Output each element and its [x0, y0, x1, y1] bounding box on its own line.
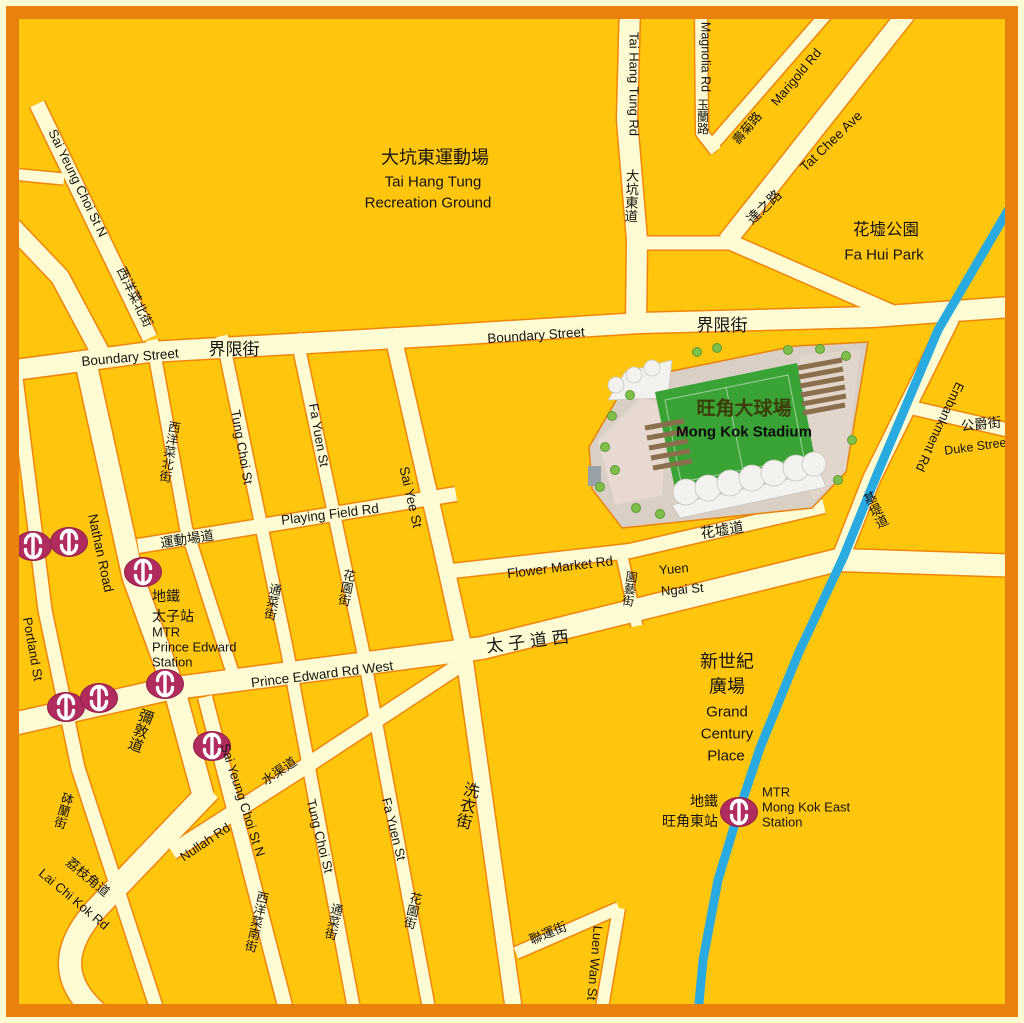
label-tai-hang-tung-recreation-ground-en-2: Recreation Ground — [365, 194, 492, 211]
mongkok-map: Sai Yeung Choi St N西洋菜北街大坑東運動場Tai Hang T… — [0, 0, 1024, 1023]
label-prince-edward-station-zh-2: 太子站 — [152, 608, 194, 624]
label-mong-kok-east-station-zh-2: 旺角東站 — [662, 813, 718, 829]
label-grand-century-place-en-3: Place — [707, 747, 745, 764]
mtr-station-icon — [721, 798, 758, 827]
stadium-nw-canopy — [644, 360, 660, 376]
mtr-station-icon — [125, 558, 162, 587]
label-grand-century-place-en-2: Century — [701, 725, 754, 742]
label-prince-edward-station-en-3: Station — [152, 655, 192, 670]
mtr-station-icon — [48, 693, 85, 722]
label-grand-century-place-zh-2: 廣場 — [709, 676, 745, 696]
label-grand-century-place-en-1: Grand — [706, 703, 748, 720]
label-mong-kok-east-station-zh-1: 地鐵 — [690, 793, 718, 809]
label-mong-kok-east-station-en-1: MTR — [762, 785, 790, 800]
label-boundary-street-east-zh: 界限街 — [697, 316, 748, 335]
label-magnolia-rd-en: Magnolia Rd — [699, 22, 713, 92]
label-magnolia-rd-zh: 玉蘭路 — [697, 98, 709, 136]
mtr-station-icon — [15, 532, 52, 561]
stadium-nw-canopy — [626, 367, 642, 383]
label-mong-kok-stadium-en: Mong Kok Stadium — [676, 423, 812, 440]
label-mong-kok-east-station-en-3: Station — [762, 815, 802, 830]
label-prince-edward-station-en-2: Prince Edward — [152, 640, 237, 655]
map-canvas: Sai Yeung Choi St N西洋菜北街大坑東運動場Tai Hang T… — [0, 0, 1024, 1023]
label-grand-century-place-zh-1: 新世紀 — [700, 651, 754, 671]
label-prince-edward-station-en-1: MTR — [152, 625, 180, 640]
label-mong-kok-east-station-en-2: Mong Kok East — [762, 800, 851, 815]
stadium-nw-canopy — [608, 377, 624, 393]
label-yuen-ngai-st-en-1: Yuen — [658, 560, 689, 578]
label-tai-hang-tung-rd-zh: 大坑東道 — [624, 168, 639, 224]
mtr-station-icon — [51, 528, 88, 557]
label-boundary-street-west-zh: 界限街 — [209, 340, 260, 359]
label-prince-edward-station-zh-1: 地鐵 — [152, 588, 180, 604]
mtr-station-icon — [81, 684, 118, 713]
label-mong-kok-stadium-zh: 旺角大球場 — [696, 397, 791, 420]
mtr-station-icon — [147, 670, 184, 699]
label-tai-hang-tung-recreation-ground-en-1: Tai Hang Tung — [385, 173, 482, 190]
label-fa-hui-park-zh: 花墟公園 — [853, 220, 919, 239]
label-tai-hang-tung-rd-en: Tai Hang Tung Rd — [626, 32, 641, 136]
label-fa-hui-park-en: Fa Hui Park — [844, 246, 924, 263]
label-tai-hang-tung-recreation-ground-zh: 大坑東運動場 — [381, 147, 489, 167]
